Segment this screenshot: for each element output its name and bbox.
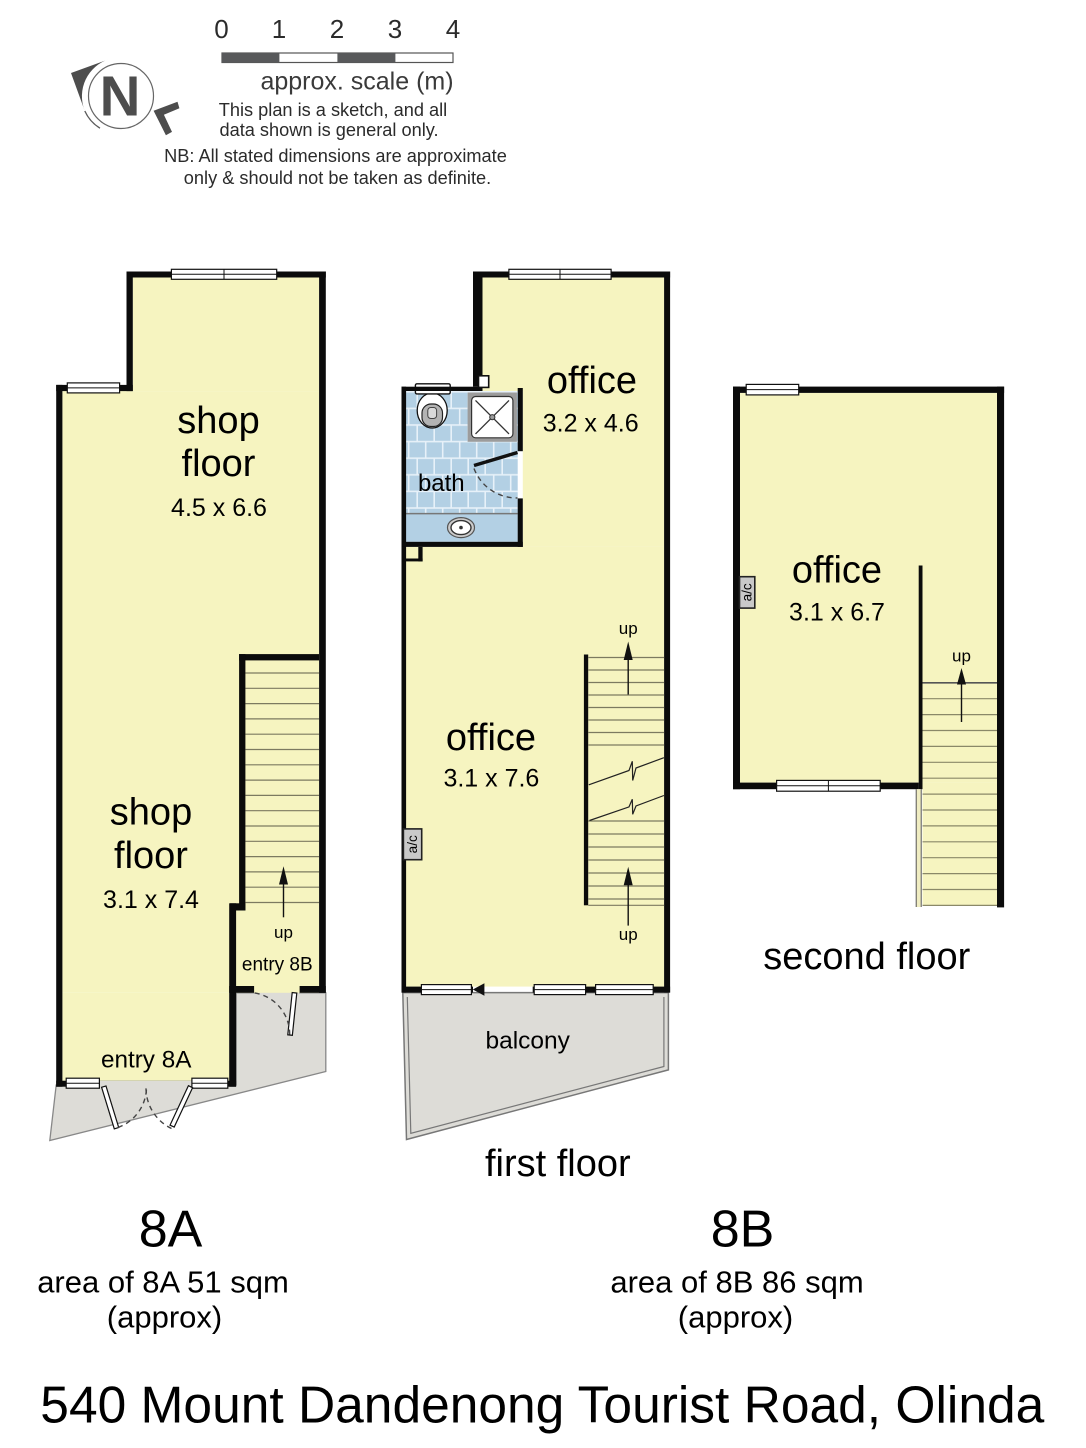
svg-text:shop: shop xyxy=(177,400,259,442)
svg-text:floor: floor xyxy=(182,443,256,485)
svg-text:entry 8A: entry 8A xyxy=(101,1046,192,1073)
svg-text:4.5 x 6.6: 4.5 x 6.6 xyxy=(171,494,267,522)
svg-text:0: 0 xyxy=(214,14,228,44)
svg-text:balcony: balcony xyxy=(485,1028,570,1055)
svg-text:only & should not be taken as: only & should not be taken as definite. xyxy=(184,168,491,188)
svg-text:bath: bath xyxy=(418,470,465,497)
svg-text:office: office xyxy=(446,717,536,759)
svg-text:3.1 x 7.6: 3.1 x 7.6 xyxy=(443,765,539,793)
svg-text:3.1 x 7.4: 3.1 x 7.4 xyxy=(103,886,199,914)
svg-text:3.2 x 4.6: 3.2 x 4.6 xyxy=(543,410,639,438)
svg-text:8A: 8A xyxy=(139,1201,203,1259)
svg-text:area of 8A 51 sqm: area of 8A 51 sqm xyxy=(37,1264,289,1299)
svg-text:first floor: first floor xyxy=(485,1143,631,1185)
svg-text:1: 1 xyxy=(272,14,286,44)
svg-text:office: office xyxy=(792,550,882,592)
svg-text:entry 8B: entry 8B xyxy=(242,954,313,975)
svg-text:up: up xyxy=(952,647,971,666)
svg-text:up: up xyxy=(619,619,638,638)
svg-text:area of 8B 86 sqm: area of 8B 86 sqm xyxy=(610,1264,863,1299)
svg-text:N: N xyxy=(100,64,141,127)
svg-text:NB: All stated dimensions are: NB: All stated dimensions are approximat… xyxy=(164,146,507,166)
svg-text:second floor: second floor xyxy=(763,936,970,978)
svg-text:data shown is general only.: data shown is general only. xyxy=(219,120,438,140)
svg-text:a/c: a/c xyxy=(740,583,755,601)
svg-text:office: office xyxy=(547,360,637,402)
svg-text:8B: 8B xyxy=(711,1201,775,1259)
svg-text:a/c: a/c xyxy=(405,835,420,853)
svg-text:3: 3 xyxy=(388,14,402,44)
svg-text:This plan is a sketch, and all: This plan is a sketch, and all xyxy=(219,100,447,120)
svg-text:floor: floor xyxy=(114,835,188,877)
svg-text:4: 4 xyxy=(446,14,460,44)
svg-text:approx. scale (m): approx. scale (m) xyxy=(260,68,453,96)
svg-text:up: up xyxy=(274,923,293,942)
svg-text:up: up xyxy=(619,925,638,944)
svg-text:540 Mount Dandenong Tourist Ro: 540 Mount Dandenong Tourist Road, Olinda xyxy=(40,1376,1044,1434)
svg-text:(approx): (approx) xyxy=(107,1300,222,1335)
svg-text:shop: shop xyxy=(110,792,192,834)
svg-text:3.1 x 6.7: 3.1 x 6.7 xyxy=(789,599,885,627)
svg-text:2: 2 xyxy=(330,14,344,44)
svg-text:(approx): (approx) xyxy=(678,1300,793,1335)
